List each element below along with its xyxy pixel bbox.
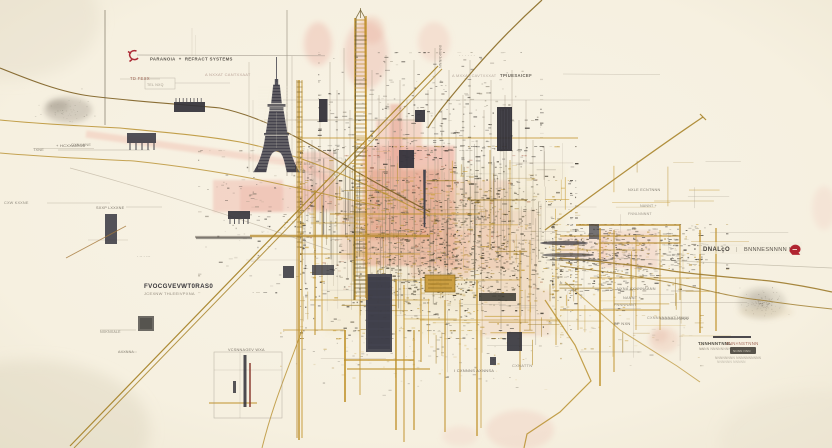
svg-text:FNNNNANT: FNNNNANT — [614, 303, 637, 307]
svg-text:FNNLNNNNT: FNNLNNNNT — [628, 212, 652, 216]
svg-text:DNALçO: DNALçO — [703, 247, 730, 253]
svg-text:NXNA XXNNNAANN: NXNA XXNNNAANN — [617, 287, 656, 291]
svg-text:SXXP LXXXNE: SXXP LXXXNE — [96, 206, 125, 210]
svg-text:NANNT +: NANNT + — [640, 204, 657, 208]
svg-text:- -- - ---: - -- - --- — [137, 254, 151, 258]
svg-text:BNNNESNNNN !: BNNNESNNNN ! — [744, 247, 791, 253]
svg-text:3NN×NSTNNN: 3NN×NSTNNN — [726, 341, 759, 346]
svg-text:TEL NXQ: TEL NXQ — [147, 83, 164, 87]
svg-text:- - - - - -: - - - - - - — [459, 53, 476, 57]
svg-text:CXW KXXNE: CXW KXXNE — [4, 201, 29, 205]
svg-text:NXKNXALE: NXKNXALE — [100, 330, 121, 334]
svg-text:PARANOIA + REFRACT SYSTEMS: PARANOIA + REFRACT SYSTEMS — [150, 57, 233, 62]
svg-text:BP NXN: BP NXN — [614, 321, 631, 326]
svg-text:|: | — [736, 247, 738, 253]
svg-text:NNNNNN NNNNN: NNNNNN NNNNN — [717, 360, 746, 364]
svg-text:A NXXAT CANTXXAAT: A NXXAT CANTXXAAT — [205, 72, 251, 77]
svg-text:I CXNNNS AXNNSA: I CXNNNS AXNNSA — [454, 368, 494, 373]
svg-text:NANNT +: NANNT + — [623, 296, 642, 300]
svg-text:CXNATTN: CXNATTN — [512, 363, 532, 368]
svg-text:TPIUESAICEF: TPIUESAICEF — [500, 73, 532, 78]
svg-text:NNNN NNN: NNNN NNN — [733, 349, 751, 353]
svg-text:NXLE ECNTNNN: NXLE ECNTNNN — [628, 188, 661, 192]
svg-text:NNNNNN MNN: NNNNNN MNN — [660, 317, 689, 321]
svg-text:TD FEXX: TD FEXX — [130, 76, 150, 81]
svg-text:INNAKNNNN: INNAKNNNN — [438, 45, 442, 68]
svg-text:A MXXAT CAVTXXXAT: A MXXAT CAVTXXXAT — [452, 73, 497, 78]
svg-text:VCSNNAGEV WXA: VCSNNAGEV WXA — [228, 348, 265, 352]
svg-text:+ HCXXAIEG8: + HCXXAIEG8 — [56, 143, 86, 148]
svg-text:JCEXNW THLEEIVPXNA: JCEXNW THLEEIVPXNA — [144, 291, 195, 296]
svg-text:FVOCGVEVWT0RAS0: FVOCGVEVWT0RAS0 — [144, 283, 213, 290]
svg-text:AXXNNA: AXXNNA — [118, 350, 134, 354]
